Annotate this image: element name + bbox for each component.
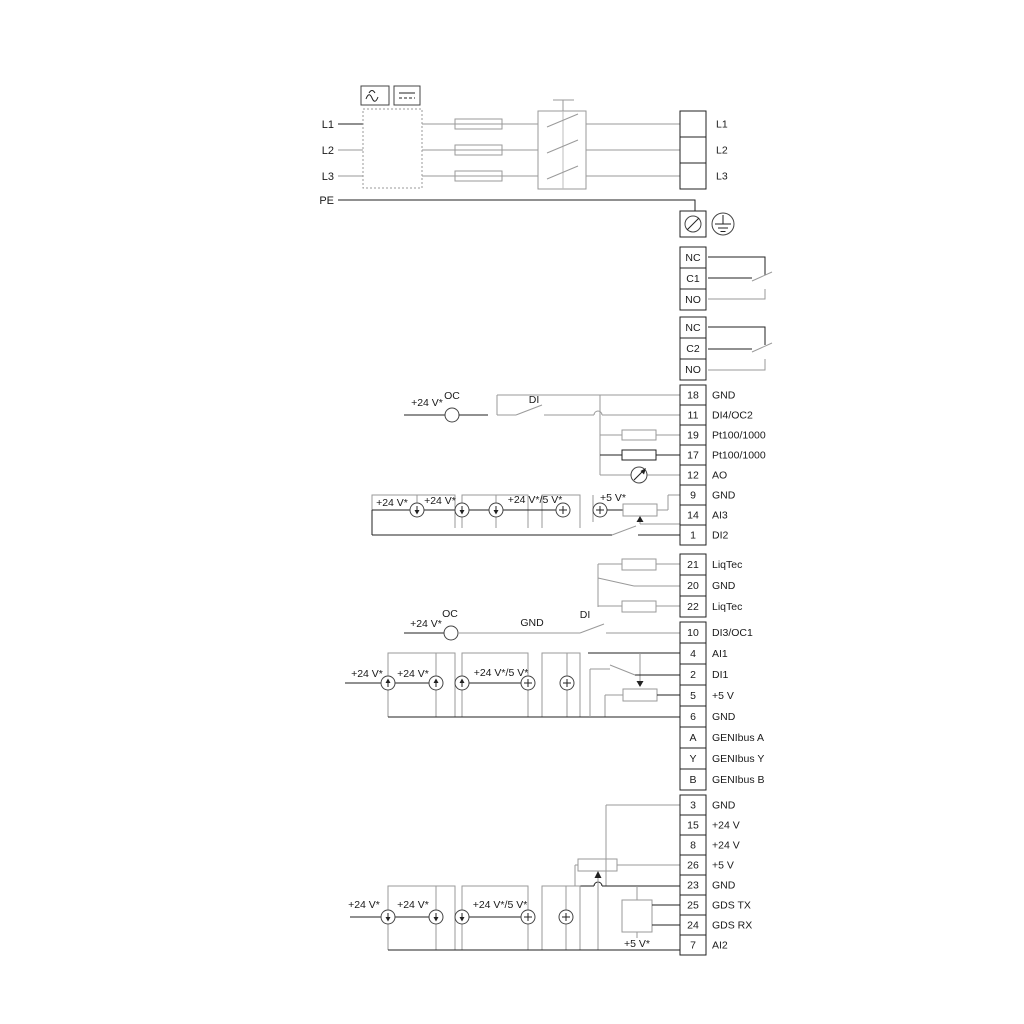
di2-switch [612,526,636,535]
terminal-label: GND [712,711,736,723]
terminal-number: 4 [690,648,696,660]
plus-source-icon [559,910,573,924]
terminal-label: GND [712,490,736,502]
terminal-number: 9 [690,490,696,502]
v24-label: +24 V* [424,495,456,507]
terminal-label: LiqTec [712,559,742,571]
current-source-icon [455,503,469,517]
current-source-icon [381,910,395,924]
terminal-label: DI2 [712,530,729,542]
di-label: DI [580,609,591,621]
io-strip-3: 3GND15+24 V8+24 V26+5 V23GND25GDS TX24GD… [680,795,752,955]
terminal-number: 6 [690,711,696,723]
wire-hop [594,411,602,415]
v5-label: +5 V* [600,492,626,504]
relay-2-contact [752,343,772,352]
potentiometer [578,859,617,871]
rcd-ac-icon [361,86,389,105]
terminal-number: C1 [686,273,700,285]
resistor [622,450,656,460]
potentiometer [623,689,657,701]
v24v5-label: +24 V*/5 V* [508,494,563,506]
io1-wiring: +24 V* OC DI [372,390,680,535]
terminal-label: GND [712,880,736,892]
option-frame [388,653,455,717]
relay-1-terminals: NCC1NO [680,247,706,310]
v24-label: +24 V* [351,668,383,680]
current-source-icon [410,503,424,517]
di-label: DI [529,394,540,406]
current-source-icon [429,676,443,690]
terminal-label: AI1 [712,648,728,660]
terminal-label: +24 V [712,820,740,832]
earth-icon [712,213,734,235]
v24v5-label: +24 V*/5 V* [473,899,528,911]
mains-label-l1: L1 [322,119,334,131]
terminal-number: 25 [687,900,699,912]
oc-output-icon [445,408,459,422]
relay-2-terminals: NCC2NO [680,317,706,380]
oc-output-icon [444,626,458,640]
plus-source-icon [521,910,535,924]
terminal-number: 8 [690,840,696,852]
main-switch [538,100,586,189]
terminal-label: +24 V [712,840,740,852]
terminal-label: GENIbus B [712,774,765,786]
mains-label-pe: PE [319,195,334,207]
terminal-number: 11 [688,410,699,422]
relay-1-wiring [708,257,772,299]
terminal-number: 21 [687,559,699,571]
terminal-box [680,163,706,189]
io3-wiring: +24 V* +24 V* +24 V*/5 V* +5 V* [348,805,680,950]
terminal-label: AI3 [712,510,728,522]
terminal-number: 1 [690,530,696,542]
terminal-number: NC [685,322,701,334]
terminal-label: GDS TX [712,900,751,912]
terminal-label: DI1 [712,669,729,681]
mains-input-labels: L1 L2 L3 PE [319,119,334,207]
liqtec-terminals: 21LiqTec20GND22LiqTec [680,554,742,617]
liqtec-wiring [598,559,680,612]
terminal-label: GDS RX [712,920,752,932]
terminal-label: L2 [716,145,728,157]
potentiometer [623,504,657,516]
v24-label: +24 V* [376,497,408,509]
terminal-label: GENIbus Y [712,753,764,765]
terminal-label: L1 [716,119,728,131]
terminal-label: +5 V [712,690,734,702]
terminal-label: Pt100/1000 [712,430,766,442]
wiring-diagram: L1 L2 L3 PE [0,0,1024,1024]
plus-source-icon [593,503,607,517]
rcd-type-icons [361,86,420,105]
terminal-number: 19 [687,430,699,442]
terminal-number: 10 [687,627,699,639]
terminal-number: 12 [687,470,699,482]
terminal-number: B [689,774,696,786]
terminal-label: GENIbus A [712,732,764,744]
terminal-number: 3 [690,800,696,812]
current-source-icon [455,676,469,690]
terminal-label: +5 V [712,860,734,872]
option-frame [462,653,528,717]
resistor [622,601,656,612]
v24-label: +24 V* [397,899,429,911]
wiring-diagram-page: L1 L2 L3 PE [0,0,1024,1024]
gnd-label: GND [520,617,544,629]
terminal-label: L3 [716,171,728,183]
current-source-icon [381,676,395,690]
pe-terminal [680,211,706,237]
v24-label: +24 V* [411,397,443,409]
io-strip-1: 18GND11DI4/OC219Pt100/100017Pt100/100012… [680,385,766,545]
terminal-number: 18 [687,390,699,402]
mains-label-l3: L3 [322,171,334,183]
gds-sensor-box [622,900,652,932]
oc-label: OC [442,608,458,620]
terminal-label: AO [712,470,727,482]
terminal-label: LiqTec [712,601,742,613]
terminal-number: 14 [687,510,699,522]
terminal-box [680,137,706,163]
resistor [622,559,656,570]
terminal-number: 5 [690,690,696,702]
terminal-number: 22 [687,601,699,613]
terminal-label: GND [712,390,736,402]
terminal-number: 2 [690,669,696,681]
terminal-number: A [689,732,696,744]
terminal-number: 17 [687,450,699,462]
terminal-label: DI3/OC1 [712,627,753,639]
rcd-dc-icon [394,86,420,105]
v24-label: +24 V* [397,668,429,680]
mains-output-terminals: L1L2L3 [680,111,728,189]
resistor [622,430,656,440]
terminal-number: 23 [687,880,699,892]
plus-source-icon [560,676,574,690]
terminal-number: Y [689,753,696,765]
relay-1-contact [752,272,772,281]
terminal-label: GND [712,580,736,592]
v24v5-label: +24 V*/5 V* [474,667,529,679]
mains-label-l2: L2 [322,145,334,157]
terminal-number: 20 [687,580,699,592]
terminal-label: DI4/OC2 [712,410,753,422]
relay-2-wiring [708,327,772,370]
mains-wires [338,124,695,211]
v24-label: +24 V* [348,899,380,911]
option-frame [462,886,528,950]
terminal-number: 15 [687,820,699,832]
di1-switch [610,665,635,675]
di-switch [516,405,542,415]
terminal-number: NO [685,294,701,306]
v5-label: +5 V* [624,938,650,950]
terminal-number: C2 [686,343,700,355]
io-strip-2: 10DI3/OC14AI12DI15+5 V6GNDAGENIbus AYGEN… [680,622,765,790]
terminal-box [680,111,706,137]
di-switch [580,624,604,633]
current-source-icon [455,910,469,924]
terminal-number: NC [685,252,701,264]
terminal-label: GND [712,800,736,812]
terminal-label: AI2 [712,940,728,952]
terminal-number: NO [685,364,701,376]
current-source-icon [489,503,503,517]
current-source-icon [429,910,443,924]
option-frame [388,886,455,950]
io2-wiring: +24 V* OC GND DI +24 V* +24 V* +24 V*/5 … [345,608,680,717]
terminal-number: 24 [687,920,699,932]
terminal-number: 7 [690,940,696,952]
emc-filter-box [363,109,422,188]
terminal-number: 26 [687,860,699,872]
oc-label: OC [444,390,460,402]
terminal-label: Pt100/1000 [712,450,766,462]
v24-label: +24 V* [410,618,442,630]
